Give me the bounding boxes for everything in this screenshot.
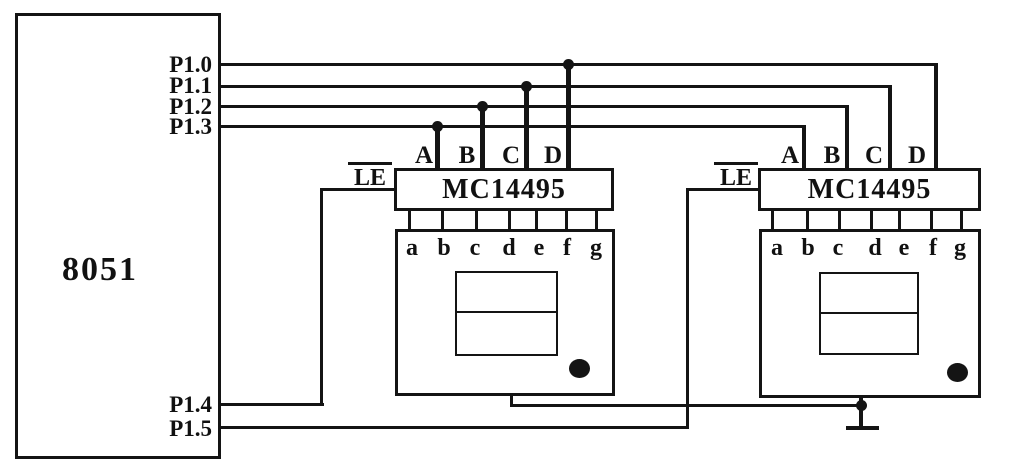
mcu-label: 8051 xyxy=(40,253,160,287)
decoder1-label: MC14495 xyxy=(442,174,566,206)
junction-dot-ground xyxy=(856,400,867,411)
wire-p1-4 xyxy=(220,403,324,406)
seven-segment-body-1 xyxy=(455,271,558,356)
segment-label-1d: d xyxy=(497,236,521,260)
segment-label-1e: e xyxy=(527,236,551,260)
segment-pin-2a xyxy=(771,211,774,229)
junction-dot-p1-2-b xyxy=(477,101,488,112)
segment-pin-2f xyxy=(930,211,933,229)
segment-label-1b: b xyxy=(432,236,456,260)
segment-label-2c: c xyxy=(826,236,850,260)
input-label-d-1: D xyxy=(538,143,568,168)
segment-label-1f: f xyxy=(555,236,579,260)
seven-segment-midline-2 xyxy=(820,312,918,314)
input-label-c-1: C xyxy=(496,143,526,168)
decimal-point-2 xyxy=(947,363,968,382)
input-label-c-2: C xyxy=(859,143,889,168)
wire-p1-0 xyxy=(220,63,938,66)
segment-label-2f: f xyxy=(921,236,945,260)
wire-le1-horizontal xyxy=(320,188,394,191)
segment-pin-1a xyxy=(408,211,411,229)
latch-enable-label-1: LE xyxy=(348,162,392,190)
segment-label-1a: a xyxy=(400,236,424,260)
segment-pin-2b xyxy=(806,211,809,229)
junction-dot-p1-3-a xyxy=(432,121,443,132)
circuit-diagram: 8051 P1.0 P1.1 P1.2 P1.3 P1.4 P1.5 A B C… xyxy=(0,0,1012,470)
wire-p1-1 xyxy=(220,85,892,88)
segment-pin-1f xyxy=(565,211,568,229)
segment-pin-2c xyxy=(838,211,841,229)
input-label-d-2: D xyxy=(902,143,932,168)
segment-label-2b: b xyxy=(796,236,820,260)
ground-symbol xyxy=(846,426,879,430)
wire-p1-5 xyxy=(220,426,689,429)
segment-pin-2d xyxy=(870,211,873,229)
decoder2-box: MC14495 xyxy=(758,168,981,211)
pin-label-p1-4: P1.4 xyxy=(120,393,212,416)
input-label-a-2: A xyxy=(775,143,805,168)
wire-le2-vertical xyxy=(686,188,689,429)
decimal-point-1 xyxy=(569,359,590,378)
segment-pin-1b xyxy=(441,211,444,229)
segment-pin-2e xyxy=(898,211,901,229)
decoder1-box: MC14495 xyxy=(394,168,614,211)
wire-le2-horizontal xyxy=(686,188,758,191)
segment-pin-1e xyxy=(535,211,538,229)
segment-label-2e: e xyxy=(892,236,916,260)
junction-dot-p1-0-d xyxy=(563,59,574,70)
latch-enable-label-2: LE xyxy=(714,162,758,190)
input-label-b-2: B xyxy=(817,143,847,168)
drop-decoder2-d xyxy=(934,63,938,170)
segment-pin-2g xyxy=(960,211,963,229)
segment-label-2g: g xyxy=(948,236,972,260)
junction-dot-p1-1-c xyxy=(521,81,532,92)
wire-le1-vertical xyxy=(320,188,323,406)
segment-label-1c: c xyxy=(463,236,487,260)
wire-p1-3 xyxy=(220,125,806,128)
input-label-a-1: A xyxy=(409,143,439,168)
segment-pin-1c xyxy=(475,211,478,229)
wire-p1-2 xyxy=(220,105,849,108)
wire-common-to-ground xyxy=(510,404,862,407)
segment-label-2a: a xyxy=(765,236,789,260)
pin-label-p1-3: P1.3 xyxy=(120,115,212,138)
segment-pin-1d xyxy=(508,211,511,229)
segment-label-2d: d xyxy=(863,236,887,260)
seven-segment-midline-1 xyxy=(456,311,557,313)
input-label-b-1: B xyxy=(452,143,482,168)
segment-label-1g: g xyxy=(584,236,608,260)
segment-pin-1g xyxy=(595,211,598,229)
pin-label-p1-5: P1.5 xyxy=(120,417,212,440)
decoder2-label: MC14495 xyxy=(808,174,932,206)
